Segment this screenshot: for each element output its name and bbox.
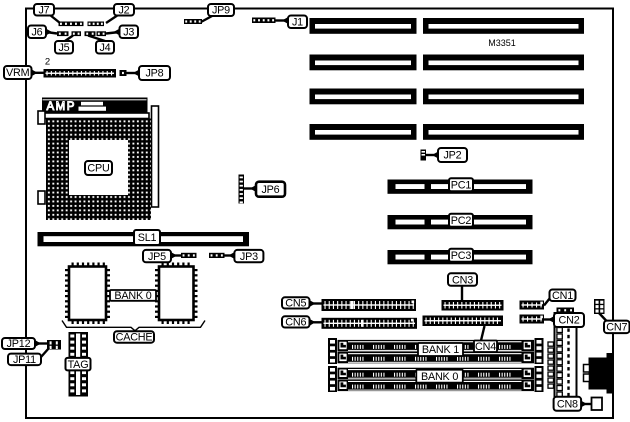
svg-text:AMP: AMP: [47, 101, 76, 113]
svg-text:CN3: CN3: [452, 274, 473, 286]
svg-text:CN6: CN6: [285, 317, 306, 329]
svg-text:J2: J2: [118, 4, 129, 16]
svg-text:J6: J6: [31, 26, 42, 38]
svg-text:BANK 0: BANK 0: [421, 371, 458, 383]
svg-text:JP5: JP5: [148, 251, 166, 263]
svg-text:JP12: JP12: [7, 338, 31, 350]
svg-text:JP2: JP2: [443, 150, 461, 162]
svg-text:PC1: PC1: [451, 180, 472, 192]
svg-text:M3351: M3351: [488, 38, 516, 48]
svg-text:CN7: CN7: [606, 322, 627, 334]
svg-text:J7: J7: [38, 4, 49, 16]
svg-text:SL1: SL1: [138, 232, 157, 244]
svg-text:CACHE: CACHE: [116, 332, 153, 344]
svg-text:CPU: CPU: [87, 163, 109, 175]
svg-text:2: 2: [45, 57, 50, 68]
svg-text:J1: J1: [292, 16, 303, 28]
svg-text:JP11: JP11: [13, 354, 36, 366]
svg-text:CN8: CN8: [557, 399, 578, 411]
svg-text:BANK 0: BANK 0: [114, 290, 151, 302]
svg-text:PC2: PC2: [451, 215, 472, 227]
svg-text:JP9: JP9: [212, 5, 230, 17]
svg-text:JP6: JP6: [261, 184, 279, 196]
svg-text:J3: J3: [123, 26, 134, 38]
svg-text:VRM: VRM: [6, 67, 30, 79]
svg-text:J4: J4: [99, 42, 110, 54]
svg-text:CN5: CN5: [285, 298, 306, 310]
svg-text:CN4: CN4: [475, 341, 496, 353]
svg-text:J5: J5: [58, 42, 69, 54]
svg-text:CN2: CN2: [559, 315, 580, 327]
svg-text:BANK 1: BANK 1: [422, 344, 459, 356]
svg-text:TAG: TAG: [68, 359, 89, 371]
svg-text:CN1: CN1: [552, 290, 573, 302]
svg-text:JP3: JP3: [240, 251, 258, 263]
svg-text:JP8: JP8: [145, 68, 163, 80]
svg-text:PC3: PC3: [451, 250, 472, 262]
